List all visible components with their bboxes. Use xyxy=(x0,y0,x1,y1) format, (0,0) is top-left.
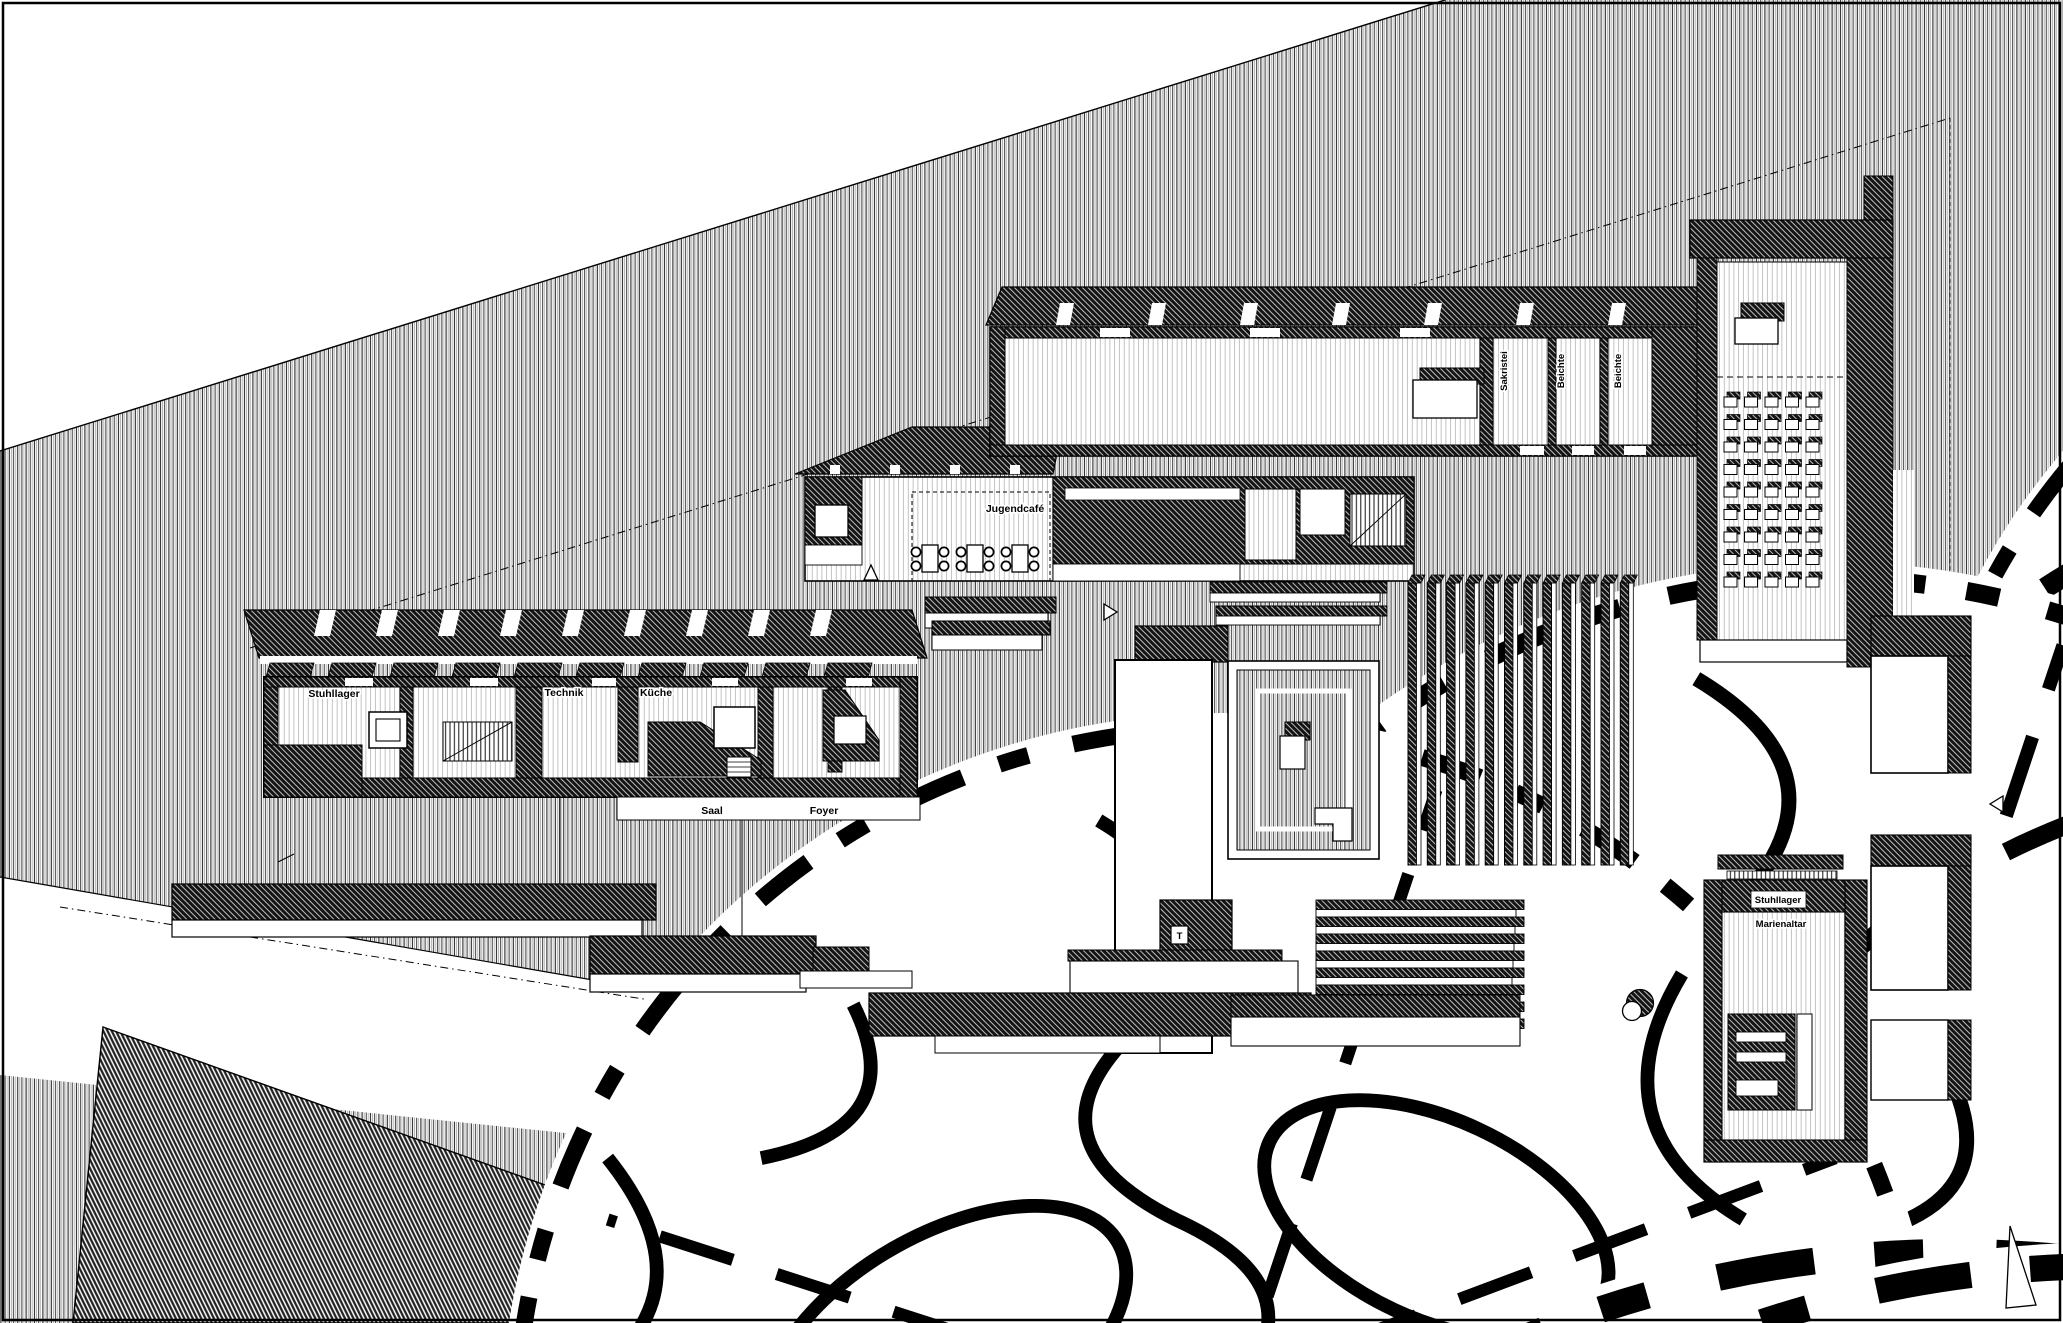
label-storage-west: Stuhllager xyxy=(308,688,359,700)
chapel-east-wall xyxy=(1847,258,1893,667)
bench-n1-top xyxy=(1210,582,1387,593)
entry-step-2-top xyxy=(932,621,1050,635)
chapel-west-wall xyxy=(1697,258,1717,640)
garden-wall-1-top xyxy=(172,884,656,920)
cafe-west-step xyxy=(805,545,862,565)
plaza-wall-a-top xyxy=(813,947,869,973)
east-room-b xyxy=(1300,489,1345,535)
east-room-a xyxy=(1245,489,1296,560)
foyer-box xyxy=(834,716,866,744)
stair-west xyxy=(443,722,512,761)
cafe-tables xyxy=(911,545,1038,572)
column xyxy=(1623,1002,1642,1021)
label-storage-chapel: Stuhllager xyxy=(1755,895,1802,906)
annex-wall-1 xyxy=(1871,616,1971,656)
bench-n1-face xyxy=(1210,593,1380,602)
sacristy-wing: Sakristei Beichte Beichte xyxy=(986,287,1700,456)
label-beichte-2: Beichte xyxy=(1613,354,1624,388)
chapel-north-wall xyxy=(1690,220,1893,258)
label-sakristei: Sakristei xyxy=(1499,351,1510,391)
plaza-wall-c-face xyxy=(1231,1017,1520,1046)
altar-pillar xyxy=(1797,1014,1812,1110)
storage-box-inner xyxy=(376,719,400,741)
plan-band-wing xyxy=(990,327,1700,456)
plaza-wall-a-face xyxy=(800,971,912,988)
label-technik: Technik xyxy=(545,687,584,699)
label-jugendcafe: Jugendcafé xyxy=(986,503,1045,515)
annex-room-3 xyxy=(1871,1020,1948,1100)
kitchen-island xyxy=(714,707,755,748)
plaza-bench-face xyxy=(1070,961,1298,993)
chapel-south-face xyxy=(1700,640,1847,662)
lady-chapel: Stuhllager Marienaltar xyxy=(1704,855,1867,1162)
annex-path xyxy=(1893,470,1914,616)
east-stair xyxy=(1350,494,1406,546)
label-saal: Saal xyxy=(701,805,723,817)
entry-step-2-face xyxy=(932,635,1042,650)
plan-svg: Stuhllager Technik Küche Saal Foyer Juge… xyxy=(0,0,2063,1323)
annex-wall-3e xyxy=(1948,1020,1971,1100)
bench-n2-top xyxy=(1216,606,1387,616)
annex-room-2 xyxy=(1871,866,1948,990)
altar-block xyxy=(1280,736,1305,769)
tower-cap xyxy=(1135,626,1228,662)
east-terrace xyxy=(1053,564,1240,581)
kitchen-grate xyxy=(727,757,751,777)
plaza-wall-c-top xyxy=(1231,995,1520,1017)
annex-wall-1e xyxy=(1948,656,1971,773)
bench-n2-face xyxy=(1216,616,1380,625)
chapel-roof-stub xyxy=(1864,176,1893,222)
cafe-west-box xyxy=(815,505,848,537)
sacristy-table xyxy=(1413,380,1477,418)
garden-wall-1-face xyxy=(172,920,642,937)
chapel-altar xyxy=(1735,318,1778,344)
garden-wall-2-face xyxy=(590,974,806,992)
lintel-bar xyxy=(1718,855,1843,869)
site-plan-drawing: Stuhllager Technik Küche Saal Foyer Juge… xyxy=(0,0,2063,1323)
garden-wall-2-top xyxy=(590,936,816,974)
label-marienaltar: Marienaltar xyxy=(1756,919,1807,930)
label-kueche: Küche xyxy=(640,687,672,699)
roof-notches xyxy=(314,610,832,636)
grille-strip xyxy=(1727,871,1837,879)
south-apron xyxy=(617,797,920,820)
annex-wall-2 xyxy=(1871,835,1971,866)
label-foyer: Foyer xyxy=(810,805,839,817)
label-beichte-1: Beichte xyxy=(1556,354,1567,388)
annex-wall-2e xyxy=(1948,866,1971,990)
entry-step-1-top xyxy=(925,597,1056,613)
weekday-chapel xyxy=(1690,176,1893,667)
plaza-bench-top xyxy=(1068,950,1282,961)
plaza-wall-b-face xyxy=(935,1036,1160,1053)
annex-room-1 xyxy=(1871,656,1948,773)
corridor-slit xyxy=(1065,488,1240,500)
label-tower-t: T xyxy=(1177,931,1183,942)
